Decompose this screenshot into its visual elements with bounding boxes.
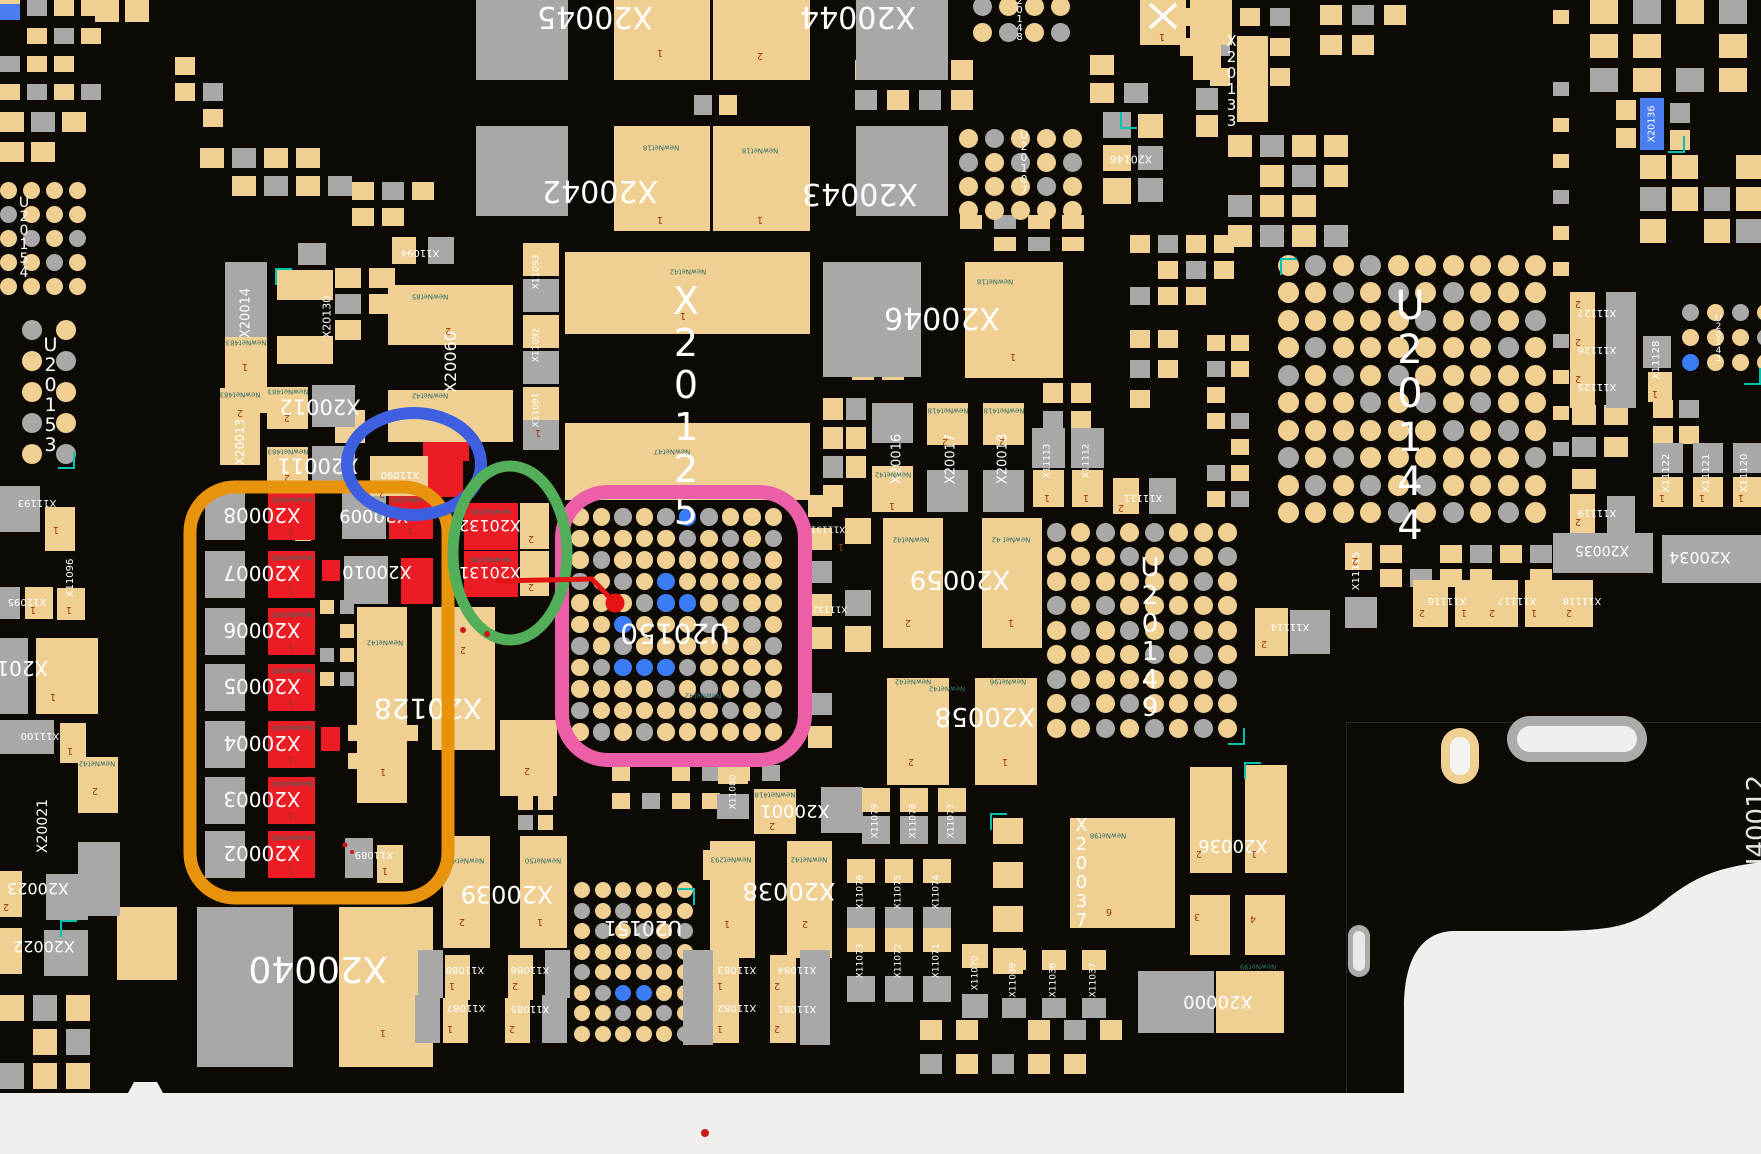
pad — [1124, 83, 1148, 103]
pad — [1270, 8, 1290, 26]
bga-pad-U20154 — [46, 278, 63, 295]
pad — [66, 1029, 90, 1055]
bga-pad-U20151 — [656, 985, 672, 1001]
component-body-X11088[interactable] — [445, 955, 470, 1000]
component-label-X20007[interactable]: X20007 — [223, 563, 300, 583]
bga-pad-U20149 — [1194, 645, 1213, 664]
pad — [1440, 545, 1462, 563]
component-label-U20153[interactable]: U20153 — [41, 334, 60, 454]
component-body-X11084[interactable] — [770, 955, 796, 1000]
component-label-X11125[interactable]: X11125 — [1578, 381, 1617, 391]
bga-pad-U20149 — [1071, 523, 1090, 542]
pad — [1736, 155, 1761, 179]
component-body-X11082[interactable] — [683, 995, 713, 1045]
component-label-X20035[interactable]: X20035 — [1575, 543, 1629, 557]
bga-pad-U20150 — [743, 616, 761, 634]
component-label-X11081[interactable]: X11081 — [778, 1003, 817, 1013]
component-label-U20154[interactable]: U20154 — [17, 195, 31, 279]
component-label-X11073[interactable]: X11073 — [857, 944, 866, 979]
pad — [612, 765, 630, 781]
component-body-X20133[interactable] — [1196, 88, 1218, 110]
bga-pad-U20150 — [679, 573, 697, 591]
pad — [1214, 261, 1234, 279]
component-body-X20136[interactable] — [1616, 128, 1636, 148]
component-body-X20058[interactable] — [975, 678, 1037, 785]
bga-pad-U20149 — [1194, 572, 1213, 591]
corner-mark — [1244, 762, 1261, 779]
component-label-X11131[interactable]: X11131 — [811, 524, 846, 533]
component-label-X20002[interactable]: X20002 — [223, 843, 300, 863]
bga-pad-U20149 — [1096, 572, 1115, 591]
pin-number: 2 — [460, 644, 466, 654]
component-label-X11092[interactable]: X11092 — [533, 328, 542, 363]
bga-pad-U20149 — [1218, 645, 1237, 664]
pad — [808, 561, 832, 583]
component-label-X20043[interactable]: X20043 — [802, 178, 918, 208]
bga-pad-U20149 — [1047, 596, 1066, 615]
component-label-X11038[interactable]: X11038 — [1050, 963, 1059, 998]
pad — [27, 56, 47, 72]
pad — [1324, 135, 1348, 157]
component-label-X11088[interactable]: X11088 — [446, 964, 485, 974]
pad — [538, 795, 553, 810]
component-body-X20036[interactable] — [1245, 895, 1285, 955]
component-body-X20036[interactable] — [1190, 895, 1230, 955]
component-body-X20130[interactable] — [298, 243, 326, 265]
component-label-X11128[interactable]: X11128 — [1652, 341, 1662, 380]
component-label-U20143[interactable]: U20143 — [1714, 314, 1723, 362]
pad — [1186, 261, 1206, 279]
bga-pad-U20149 — [1218, 621, 1237, 640]
bga-pad-U20148 — [1051, 23, 1070, 42]
pad — [518, 815, 533, 830]
component-label-X11085[interactable]: X11085 — [511, 1003, 550, 1013]
pad — [1100, 1020, 1122, 1040]
component-label-J40012[interactable]: J40012 — [1744, 775, 1761, 865]
component-body-X11114[interactable] — [1290, 610, 1330, 654]
corner-mark — [275, 268, 292, 285]
bga-pad-U20150 — [636, 702, 654, 720]
pad — [27, 0, 47, 16]
bga-pad-U20150 — [614, 530, 632, 548]
pin-number: 1 — [724, 918, 730, 928]
pad — [264, 176, 288, 196]
component-body-X20060[interactable] — [388, 390, 513, 442]
bga-pad-U20144 — [1333, 392, 1354, 413]
bga-pad-U20149 — [1120, 719, 1139, 738]
component-label-U20149[interactable]: U20149 — [1137, 553, 1163, 721]
component-label-U20151[interactable]: U20151 — [604, 918, 682, 938]
pad — [672, 793, 690, 809]
component-label-U20107[interactable]: U20107 — [1019, 129, 1030, 195]
bga-pad-U20149 — [1145, 523, 1164, 542]
bga-pad-U20144 — [1278, 447, 1299, 468]
pad — [0, 142, 24, 162]
component-label-X11193[interactable]: X11193 — [18, 497, 57, 507]
component-label-X11074[interactable]: X11074 — [933, 875, 942, 910]
component-label-X11096[interactable]: X11096 — [66, 559, 76, 598]
component-body-X11087[interactable] — [415, 995, 440, 1043]
component-label-X20021[interactable]: X20021 — [36, 799, 50, 853]
component-label-X20039[interactable]: X20039 — [461, 882, 554, 906]
component-body-X20146[interactable] — [1138, 114, 1163, 138]
bga-pad-U20149 — [1047, 670, 1066, 689]
component-label-X11078[interactable]: X11078 — [910, 804, 919, 839]
bga-pad-U20150 — [743, 530, 761, 548]
pad — [31, 112, 55, 132]
pad — [1240, 8, 1260, 26]
pin-number: 1 — [30, 604, 36, 614]
component-label-X20010[interactable]: X20010 — [342, 562, 412, 580]
pad — [0, 1063, 24, 1089]
component-body-X11193[interactable] — [0, 486, 40, 532]
pin-number: 1 — [1652, 388, 1658, 398]
bga-pad-U20150 — [657, 680, 675, 698]
component-label-X11100[interactable]: X11100 — [21, 730, 60, 740]
component-label-X11079[interactable]: X11079 — [872, 804, 881, 839]
component-label-X11083[interactable]: X11083 — [718, 964, 757, 974]
component-label-X11084[interactable]: X11084 — [778, 964, 817, 974]
component-label-X20012[interactable]: X20012 — [279, 396, 360, 417]
component-label-X20014[interactable]: X20014 — [240, 288, 253, 338]
bga-pad-U20150 — [700, 573, 718, 591]
component-body-X11072[interactable] — [885, 976, 913, 1002]
component-body-X11193[interactable] — [45, 507, 75, 551]
pin-number: 1 — [1738, 492, 1744, 502]
pad — [31, 142, 55, 162]
component-label-X11095[interactable]: X11095 — [8, 596, 47, 606]
pad — [823, 456, 843, 478]
pad — [1352, 35, 1374, 55]
component-label-X20040[interactable]: X20040 — [248, 950, 387, 986]
component-label-X20004[interactable]: X20004 — [223, 733, 300, 753]
component-body-X11038[interactable] — [1042, 998, 1066, 1018]
pad — [1071, 383, 1091, 403]
component-body-X20133[interactable] — [1237, 36, 1268, 122]
component-label-U20150[interactable]: U20150 — [620, 619, 730, 647]
pad — [1553, 262, 1569, 276]
pin-number: 2 — [284, 472, 290, 482]
net-name: NewNet42 — [448, 857, 484, 864]
bga-pad-U20150 — [765, 702, 783, 720]
bga-pad-U20144 — [1498, 502, 1519, 523]
bga-pad-U20151 — [574, 903, 590, 919]
component-label-X11118[interactable]: X11118 — [1563, 595, 1602, 605]
component-body-X20132[interactable] — [520, 503, 549, 549]
pad — [320, 600, 334, 614]
bga-pad-U20149 — [1169, 572, 1188, 591]
bga-pad-U20149 — [1047, 694, 1066, 713]
bga-pad-U20144 — [1278, 337, 1299, 358]
pad — [1231, 491, 1249, 507]
pin-number: 1 — [1159, 31, 1165, 41]
bga-pad-U20144 — [1360, 282, 1381, 303]
component-label-X20132[interactable]: X20132 — [459, 517, 521, 533]
bga-pad-U20150 — [571, 723, 589, 741]
bga-pad-U20107 — [959, 153, 978, 172]
bga-pad-U20144 — [1470, 392, 1491, 413]
pin-number: 1 — [53, 524, 59, 534]
net-name: NewNet18 — [977, 278, 1013, 285]
bga-pad-U20144 — [1525, 310, 1546, 331]
bga-pad-U20150 — [722, 723, 740, 741]
pin-number: 2 — [1489, 607, 1495, 617]
pad — [823, 427, 843, 449]
component-body-X20136[interactable] — [1616, 100, 1636, 120]
pad — [1719, 34, 1747, 58]
component-label-X11071[interactable]: X11071 — [933, 944, 942, 979]
component-body-X11037[interactable] — [1082, 998, 1106, 1018]
bga-pad-U20154 — [0, 182, 17, 199]
component-body-X20133[interactable] — [1196, 115, 1218, 137]
bga-pad-U20150 — [657, 530, 675, 548]
bga-pad-U20144 — [1525, 365, 1546, 386]
component-body-X11084[interactable] — [800, 950, 830, 1000]
component-label-X11117[interactable]: X11117 — [1498, 595, 1537, 605]
bga-pad-U20107 — [1037, 129, 1056, 148]
pad — [762, 765, 780, 781]
component-label-X11076[interactable]: X11076 — [857, 875, 866, 910]
bga-pad-U20150 — [700, 551, 718, 569]
pad — [335, 268, 361, 288]
component-label-X11039[interactable]: X11039 — [1010, 963, 1019, 998]
pad — [203, 83, 223, 101]
component-label-X11080[interactable]: X11080 — [730, 775, 739, 810]
component-label-X11070[interactable]: X11070 — [972, 956, 981, 991]
component-label-X20042[interactable]: X20042 — [542, 175, 658, 205]
component-body-X20128[interactable] — [432, 607, 495, 750]
pad — [845, 590, 871, 616]
pin-number: 2 — [942, 436, 948, 446]
component-body-X20037[interactable] — [993, 862, 1023, 888]
pad — [27, 28, 47, 44]
component-label-X20008[interactable]: X20008 — [223, 505, 300, 525]
component-body-X11083[interactable] — [713, 955, 739, 1000]
component-label-X11087[interactable]: X11087 — [447, 1002, 486, 1012]
component-label-X20128[interactable]: X20128 — [374, 694, 482, 722]
component-body-X20146[interactable] — [1103, 178, 1131, 204]
pad — [1231, 361, 1249, 377]
component-label-X20013[interactable]: X20013 — [234, 419, 246, 465]
component-label-X20044[interactable]: X20044 — [800, 1, 916, 31]
component-body-X20131[interactable] — [520, 551, 549, 596]
bga-pad-U20150 — [593, 702, 611, 720]
bga-pad-U20144 — [1333, 502, 1354, 523]
component-body-X20130[interactable] — [277, 336, 333, 364]
bga-pad-U20150 — [636, 573, 654, 591]
bga-pad-U20144 — [1333, 255, 1354, 276]
pin-number: 2 — [379, 488, 385, 498]
component-label-X11094[interactable]: X11094 — [401, 247, 440, 257]
component-label-X11120[interactable]: X11120 — [1740, 454, 1750, 493]
component-label-X20022[interactable]: X20022 — [13, 938, 75, 954]
bga-pad-U20144 — [1470, 365, 1491, 386]
net-name: NewNet 42 — [992, 536, 1031, 543]
net-name: NewNet483 — [268, 448, 309, 455]
pad — [1158, 235, 1178, 253]
bga-pad-U20149 — [1047, 621, 1066, 640]
bga-pad-U20150 — [700, 594, 718, 612]
bga-pad-U20144 — [1470, 502, 1491, 523]
component-label-X20136[interactable]: X20136 — [1647, 106, 1657, 143]
component-label-X11111[interactable]: X11111 — [1124, 492, 1163, 502]
bga-pad-U20144 — [1360, 310, 1381, 331]
bga-pad-U20150 — [765, 551, 783, 569]
bga-pad-U20150 — [614, 551, 632, 569]
net-name: NewNet293 — [711, 856, 752, 863]
pad — [1043, 383, 1063, 403]
component-label-X20003[interactable]: X20003 — [223, 789, 300, 809]
component-body-X11083[interactable] — [683, 950, 713, 1000]
component-label-X20130[interactable]: X20130 — [322, 296, 333, 339]
component-label-X11112[interactable]: X11112 — [1083, 444, 1092, 479]
pad — [1572, 469, 1596, 489]
component-label-X11037[interactable]: X11037 — [1090, 963, 1099, 998]
component-label-X2011[interactable]: X2011 — [0, 658, 48, 678]
component-label-X11091[interactable]: X11091 — [533, 393, 542, 428]
component-label-X11126[interactable]: X11126 — [1578, 344, 1617, 354]
bga-pad-U20144 — [1498, 420, 1519, 441]
pad — [808, 726, 832, 748]
bga-pad-U20144 — [1278, 502, 1299, 523]
bga-pad-U20150 — [571, 530, 589, 548]
bga-pad-U20151 — [574, 923, 590, 939]
component-body-X20136[interactable] — [1670, 103, 1690, 123]
component-label-X20045[interactable]: X20045 — [537, 1, 653, 31]
pad — [1633, 68, 1661, 92]
component-label-X11122[interactable]: X11122 — [1662, 454, 1672, 493]
bga-pad-U20143 — [1682, 329, 1699, 346]
pad — [887, 90, 909, 110]
bga-pad-U20149 — [1194, 670, 1213, 689]
component-label-X20006[interactable]: X20006 — [223, 620, 300, 640]
pad — [81, 84, 101, 100]
component-label-X20001[interactable]: X20001 — [760, 801, 830, 819]
component-label-X20000[interactable]: X20000 — [1183, 992, 1253, 1010]
pad — [335, 320, 361, 340]
component-label-X11116[interactable]: X11116 — [1428, 595, 1467, 605]
component-label-X20036[interactable]: X20036 — [1198, 836, 1268, 854]
component-body-X20146[interactable] — [1138, 178, 1163, 202]
component-label-X11090[interactable]: X11090 — [381, 469, 420, 479]
bga-pad-U20150 — [679, 723, 697, 741]
pcb-board-view: U20150U20151U20149U20144U20153U20154U201… — [0, 0, 1761, 1154]
bga-pad-U20154 — [69, 206, 86, 223]
bga-pad-U20151 — [636, 1026, 652, 1042]
component-label-X11086[interactable]: X11086 — [511, 964, 550, 974]
bga-pad-U20144 — [1360, 447, 1381, 468]
pin-number: 2 — [757, 50, 763, 60]
component-label-X11119[interactable]: X11119 — [1578, 507, 1617, 517]
component-body-X11090[interactable] — [428, 455, 463, 497]
pad — [1207, 465, 1225, 481]
component-label-X11072[interactable]: X11072 — [895, 944, 904, 979]
component-label-X20058[interactable]: X20058 — [935, 703, 1036, 729]
bga-pad-U20144 — [1443, 282, 1464, 303]
bga-pad-U20151 — [636, 944, 652, 960]
bga-pad-U20107 — [959, 177, 978, 196]
bga-pad-U20150 — [765, 637, 783, 655]
component-label-U20148[interactable]: U20148 — [1014, 0, 1024, 41]
pad — [125, 0, 149, 22]
bga-pad-U20149 — [1169, 670, 1188, 689]
component-label-X20009[interactable]: X20009 — [339, 506, 409, 524]
bga-pad-U20149 — [1169, 547, 1188, 566]
pin-number: 1 — [382, 865, 388, 875]
bga-pad-U20149 — [1096, 670, 1115, 689]
component-label-X20023[interactable]: X20023 — [7, 880, 69, 896]
component-label-X11075[interactable]: X11075 — [895, 875, 904, 910]
component-label-X20046[interactable]: X20046 — [884, 302, 1000, 332]
component-body-X11070[interactable] — [962, 994, 988, 1018]
pad — [320, 672, 334, 686]
component-label-X11082[interactable]: X11082 — [718, 1002, 757, 1012]
component-body-X11071[interactable] — [923, 976, 951, 1002]
component-label-X11127[interactable]: X11127 — [1578, 307, 1617, 317]
component-label-X11132[interactable]: X11132 — [813, 604, 848, 613]
component-label-X20146[interactable]: X20146 — [1110, 154, 1153, 165]
component-body-X20044[interactable] — [713, 0, 810, 80]
pad — [1590, 34, 1618, 58]
component-label-X20133[interactable]: X20133 — [1224, 32, 1239, 128]
component-body-X11115[interactable] — [1345, 597, 1377, 628]
pad — [1186, 287, 1206, 305]
component-label-X20034[interactable]: X20034 — [1669, 549, 1731, 565]
pad — [1207, 387, 1225, 403]
component-label-X20005[interactable]: X20005 — [223, 676, 300, 696]
component-label-X11077[interactable]: X11077 — [948, 804, 957, 839]
bga-pad-U20143 — [1757, 304, 1761, 321]
pad — [1207, 361, 1225, 377]
pin-number: 1 — [717, 980, 723, 990]
pin-number: 1 — [1008, 617, 1014, 627]
component-body-X20040[interactable] — [117, 907, 177, 980]
component-label-X11121[interactable]: X11121 — [1702, 454, 1712, 493]
component-label-X20131[interactable]: X20131 — [459, 564, 521, 580]
component-body-X11073[interactable] — [847, 976, 875, 1002]
component-label-X20037[interactable]: X20037 — [1072, 815, 1090, 929]
component-body-X11114[interactable] — [1255, 608, 1288, 656]
bga-pad-U20151 — [595, 1005, 611, 1021]
net-name: NewNet483 — [220, 391, 261, 398]
pin-number: 1 — [288, 754, 294, 764]
bga-pad-U20149 — [1071, 621, 1090, 640]
component-body-X20058[interactable] — [887, 678, 949, 785]
component-label-U20144[interactable]: U20144 — [1390, 283, 1430, 547]
component-label-X11093[interactable]: X11093 — [533, 255, 542, 290]
component-body-X11039[interactable] — [1002, 998, 1026, 1018]
component-label-X20038[interactable]: X20038 — [743, 879, 836, 903]
component-body-X20133[interactable] — [1193, 36, 1221, 80]
component-body-X11088[interactable] — [418, 950, 443, 998]
component-body-X20037[interactable] — [993, 906, 1023, 932]
component-body-X11086[interactable] — [508, 955, 533, 1000]
pad — [1090, 83, 1114, 103]
bga-pad-U20150 — [679, 551, 697, 569]
pad — [920, 1020, 942, 1040]
pad — [1500, 545, 1522, 563]
bga-pad-U20144 — [1470, 310, 1491, 331]
component-label-X20059[interactable]: X20059 — [910, 566, 1011, 592]
component-label-X11113[interactable]: X11113 — [1044, 444, 1053, 479]
pad — [1704, 187, 1730, 211]
pad — [612, 793, 630, 809]
component-label-X11114[interactable]: X11114 — [1271, 621, 1310, 631]
pad — [335, 294, 361, 314]
component-label-X11089[interactable]: X11089 — [355, 849, 394, 859]
component-label-X20060[interactable]: X20060 — [443, 331, 459, 393]
bga-pad-U20149 — [1169, 719, 1188, 738]
